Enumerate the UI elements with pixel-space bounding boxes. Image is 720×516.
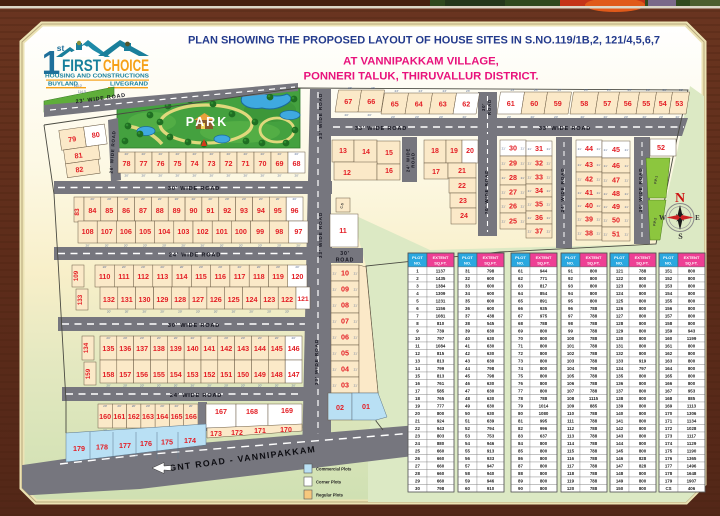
svg-text:170: 170 — [665, 411, 673, 416]
svg-text:20': 20' — [124, 152, 128, 156]
svg-text:20': 20' — [201, 243, 205, 247]
svg-text:20': 20' — [276, 265, 280, 269]
svg-text:21': 21' — [597, 147, 601, 151]
svg-text:20': 20' — [642, 115, 646, 119]
svg-text:800: 800 — [540, 456, 548, 461]
svg-text:20': 20' — [258, 243, 262, 247]
svg-text:20': 20' — [90, 197, 94, 201]
svg-text:21': 21' — [604, 233, 608, 237]
svg-text:20': 20' — [603, 115, 607, 119]
svg-text:794: 794 — [487, 426, 495, 431]
svg-text:SQ.FT.: SQ.FT. — [587, 260, 599, 265]
svg-text:70: 70 — [518, 336, 523, 341]
svg-text:20': 20' — [239, 243, 243, 247]
svg-text:600: 600 — [487, 291, 495, 296]
svg-text:21': 21' — [354, 336, 358, 340]
svg-text:885: 885 — [590, 404, 598, 409]
svg-text:800: 800 — [540, 336, 548, 341]
svg-text:20': 20' — [624, 115, 628, 119]
svg-text:127: 127 — [192, 295, 204, 304]
svg-text:20': 20' — [226, 173, 230, 177]
svg-text:74: 74 — [191, 159, 199, 168]
svg-text:18: 18 — [415, 396, 420, 401]
svg-text:46: 46 — [612, 161, 620, 170]
svg-text:21': 21' — [604, 164, 608, 168]
svg-text:1134: 1134 — [687, 419, 697, 424]
svg-text:101: 101 — [216, 227, 228, 236]
svg-text:99: 99 — [256, 227, 264, 236]
svg-text:800: 800 — [639, 396, 647, 401]
svg-text:406: 406 — [688, 486, 696, 491]
svg-text:800: 800 — [639, 336, 647, 341]
svg-text:68: 68 — [518, 321, 523, 326]
svg-text:11: 11 — [339, 226, 347, 235]
svg-text:20': 20' — [391, 115, 395, 119]
svg-text:60: 60 — [530, 99, 538, 108]
svg-text:141: 141 — [616, 419, 624, 424]
svg-text:48: 48 — [465, 396, 470, 401]
svg-text:ROAD: ROAD — [411, 152, 416, 168]
svg-text:810: 810 — [437, 321, 445, 326]
svg-text:20': 20' — [178, 309, 182, 313]
svg-text:21': 21' — [333, 336, 337, 340]
svg-text:30' WIDE ROAD: 30' WIDE ROAD — [168, 186, 220, 192]
svg-text:108: 108 — [567, 396, 575, 401]
svg-text:639: 639 — [487, 419, 495, 424]
svg-text:630: 630 — [487, 411, 495, 416]
svg-text:20': 20' — [141, 152, 145, 156]
svg-text:ROAD: ROAD — [487, 99, 492, 115]
svg-text:23': 23' — [607, 88, 611, 92]
svg-text:20': 20' — [344, 113, 348, 117]
svg-text:LIVEGRAND: LIVEGRAND — [110, 82, 148, 88]
svg-text:20': 20' — [295, 265, 299, 269]
svg-text:50: 50 — [612, 216, 620, 225]
svg-text:136: 136 — [616, 381, 624, 386]
svg-text:1084: 1084 — [436, 344, 446, 349]
svg-text:23: 23 — [459, 198, 467, 205]
svg-text:43: 43 — [585, 160, 593, 169]
svg-text:84: 84 — [88, 206, 96, 215]
svg-text:946: 946 — [487, 479, 495, 484]
svg-text:105: 105 — [567, 374, 575, 379]
svg-text:20': 20' — [285, 309, 289, 313]
svg-text:777: 777 — [437, 404, 445, 409]
svg-text:179: 179 — [665, 479, 673, 484]
svg-text:CHOICE: CHOICE — [103, 56, 149, 75]
svg-text:21': 21' — [354, 368, 358, 372]
svg-text:800: 800 — [639, 479, 647, 484]
svg-text:104: 104 — [158, 227, 170, 236]
svg-text:105: 105 — [139, 227, 151, 236]
svg-text:147: 147 — [616, 464, 624, 469]
svg-text:21: 21 — [458, 168, 466, 175]
svg-text:21': 21' — [625, 233, 629, 237]
svg-text:800: 800 — [688, 291, 696, 296]
svg-text:145: 145 — [616, 449, 624, 454]
svg-text:20': 20' — [241, 383, 245, 387]
svg-text:788: 788 — [590, 411, 598, 416]
svg-text:119: 119 — [567, 479, 575, 484]
svg-text:160: 160 — [99, 412, 111, 421]
svg-text:22: 22 — [458, 183, 466, 190]
svg-text:17: 17 — [432, 169, 440, 176]
svg-text:09: 09 — [341, 285, 349, 294]
svg-text:1231: 1231 — [436, 299, 446, 304]
svg-text:800: 800 — [540, 366, 548, 371]
svg-text:800: 800 — [639, 381, 647, 386]
svg-text:21': 21' — [625, 219, 629, 223]
svg-text:36: 36 — [465, 306, 470, 311]
svg-text:21': 21' — [604, 148, 608, 152]
svg-text:155: 155 — [153, 370, 165, 379]
svg-text:21': 21' — [333, 352, 337, 356]
svg-text:173: 173 — [210, 431, 222, 438]
svg-text:800: 800 — [639, 374, 647, 379]
svg-text:120: 120 — [291, 272, 303, 281]
svg-text:21': 21' — [521, 220, 525, 224]
svg-text:20': 20' — [162, 243, 166, 247]
svg-text:st: st — [57, 43, 65, 53]
svg-text:20': 20' — [277, 173, 281, 177]
svg-text:20': 20' — [292, 383, 296, 387]
svg-text:76: 76 — [518, 381, 523, 386]
svg-text:21': 21' — [578, 191, 582, 195]
svg-text:42: 42 — [465, 351, 470, 356]
svg-text:797: 797 — [437, 336, 445, 341]
svg-text:21': 21' — [604, 219, 608, 223]
svg-text:21': 21' — [502, 176, 506, 180]
svg-text:20': 20' — [238, 265, 242, 269]
svg-text:135: 135 — [616, 374, 624, 379]
svg-text:21': 21' — [597, 191, 601, 195]
svg-text:159: 159 — [85, 368, 92, 379]
svg-text:788: 788 — [590, 419, 598, 424]
svg-text:54: 54 — [465, 441, 470, 446]
svg-text:95: 95 — [568, 299, 573, 304]
svg-text:600: 600 — [487, 284, 495, 289]
svg-text:1306: 1306 — [687, 411, 697, 416]
svg-text:N: N — [675, 191, 685, 206]
svg-text:140: 140 — [616, 411, 624, 416]
svg-text:21': 21' — [578, 218, 582, 222]
svg-text:148: 148 — [616, 471, 624, 476]
svg-text:21': 21' — [578, 232, 582, 236]
svg-text:121: 121 — [616, 269, 624, 274]
svg-text:112: 112 — [137, 272, 149, 281]
svg-text:20': 20' — [277, 243, 281, 247]
svg-text:50: 50 — [465, 411, 470, 416]
svg-text:21': 21' — [333, 288, 337, 292]
svg-text:21': 21' — [521, 176, 525, 180]
svg-text:600: 600 — [487, 276, 495, 281]
svg-text:600: 600 — [487, 299, 495, 304]
svg-text:630: 630 — [487, 336, 495, 341]
svg-text:20': 20' — [143, 309, 147, 313]
svg-text:800: 800 — [639, 426, 647, 431]
svg-text:26: 26 — [509, 202, 517, 211]
svg-text:29: 29 — [415, 479, 420, 484]
svg-text:630: 630 — [487, 329, 495, 334]
svg-text:111: 111 — [118, 272, 129, 281]
svg-text:100: 100 — [235, 227, 247, 236]
svg-text:800: 800 — [540, 449, 548, 454]
svg-text:142: 142 — [616, 426, 624, 431]
svg-text:23': 23' — [627, 88, 631, 92]
svg-text:93: 93 — [568, 284, 573, 289]
svg-text:947: 947 — [487, 464, 495, 469]
svg-text:788: 788 — [590, 351, 598, 356]
svg-text:788: 788 — [590, 381, 598, 386]
svg-text:20': 20' — [191, 197, 195, 201]
svg-text:36: 36 — [535, 213, 543, 222]
svg-text:800: 800 — [639, 351, 647, 356]
svg-text:132: 132 — [103, 295, 115, 304]
svg-text:21': 21' — [528, 176, 532, 180]
svg-text:20': 20' — [209, 173, 213, 177]
svg-text:01: 01 — [362, 402, 370, 411]
svg-text:30' WIDE ROAD: 30' WIDE ROAD — [168, 323, 220, 329]
svg-text:48: 48 — [612, 189, 620, 198]
svg-text:143: 143 — [237, 344, 249, 353]
svg-text:171: 171 — [665, 419, 673, 424]
svg-text:157: 157 — [665, 314, 673, 319]
svg-text:77: 77 — [518, 389, 523, 394]
svg-text:53: 53 — [675, 99, 683, 108]
svg-text:72: 72 — [518, 351, 523, 356]
svg-text:151: 151 — [665, 269, 673, 274]
svg-text:79: 79 — [518, 404, 523, 409]
svg-text:28: 28 — [509, 173, 517, 182]
svg-text:122: 122 — [281, 295, 293, 304]
svg-text:800: 800 — [540, 381, 548, 386]
svg-text:20': 20' — [103, 404, 107, 408]
svg-text:943: 943 — [688, 329, 696, 334]
svg-text:788: 788 — [590, 306, 598, 311]
svg-text:10: 10 — [415, 336, 420, 341]
svg-text:20': 20' — [181, 243, 185, 247]
svg-text:AT VANNIPAKKAM VILLAGE,: AT VANNIPAKKAM VILLAGE, — [343, 56, 499, 68]
svg-text:33: 33 — [535, 173, 543, 182]
svg-text:944: 944 — [540, 269, 548, 274]
svg-text:161: 161 — [113, 412, 125, 421]
svg-text:21': 21' — [578, 147, 582, 151]
svg-text:88: 88 — [518, 471, 523, 476]
svg-text:16: 16 — [385, 168, 393, 175]
svg-text:800: 800 — [437, 411, 445, 416]
svg-text:61: 61 — [518, 269, 523, 274]
svg-text:545: 545 — [487, 321, 495, 326]
svg-text:1137: 1137 — [436, 269, 446, 274]
svg-text:65: 65 — [391, 100, 399, 109]
svg-text:172: 172 — [665, 426, 673, 431]
svg-text:177: 177 — [665, 464, 673, 469]
svg-text:21': 21' — [521, 147, 525, 151]
svg-text:813: 813 — [437, 374, 445, 379]
svg-text:20': 20' — [123, 336, 127, 340]
svg-text:1080: 1080 — [539, 411, 549, 416]
svg-text:21': 21' — [528, 203, 532, 207]
svg-text:35: 35 — [465, 299, 470, 304]
svg-text:21': 21' — [354, 272, 358, 276]
svg-text:77: 77 — [140, 159, 148, 168]
svg-text:20': 20' — [107, 309, 111, 313]
svg-text:74: 74 — [518, 366, 523, 371]
svg-text:126: 126 — [616, 306, 624, 311]
svg-text:25: 25 — [509, 217, 517, 226]
svg-text:113: 113 — [157, 272, 169, 281]
svg-text:630: 630 — [487, 389, 495, 394]
svg-text:739: 739 — [437, 329, 445, 334]
svg-text:20': 20' — [207, 336, 211, 340]
svg-text:SQ.FT.: SQ.FT. — [537, 260, 549, 265]
svg-text:168: 168 — [246, 407, 258, 416]
svg-text:SQ.FT.: SQ.FT. — [484, 260, 496, 265]
svg-text:20: 20 — [466, 148, 474, 155]
svg-text:110.0': 110.0' — [74, 84, 83, 88]
svg-text:126: 126 — [210, 295, 222, 304]
svg-text:20': 20' — [175, 404, 179, 408]
svg-text:109: 109 — [567, 404, 575, 409]
svg-text:134: 134 — [616, 366, 624, 371]
svg-text:10: 10 — [341, 269, 349, 278]
svg-text:24: 24 — [415, 441, 420, 446]
svg-text:162: 162 — [128, 412, 140, 421]
svg-text:800: 800 — [590, 269, 598, 274]
svg-text:53: 53 — [465, 434, 470, 439]
svg-text:23: 23 — [415, 434, 420, 439]
svg-text:21': 21' — [354, 304, 358, 308]
svg-text:87: 87 — [139, 206, 147, 215]
svg-text:42: 42 — [585, 175, 593, 184]
svg-text:103: 103 — [567, 359, 575, 364]
svg-text:66: 66 — [518, 306, 523, 311]
svg-text:788: 788 — [590, 374, 598, 379]
svg-text:115: 115 — [567, 449, 575, 454]
svg-text:158: 158 — [665, 321, 673, 326]
svg-text:21: 21 — [415, 419, 420, 424]
svg-text:144: 144 — [254, 344, 266, 353]
svg-text:800: 800 — [639, 449, 647, 454]
svg-text:23': 23' — [348, 86, 352, 90]
svg-text:975: 975 — [540, 314, 548, 319]
svg-text:80: 80 — [91, 130, 100, 140]
svg-text:21': 21' — [354, 352, 358, 356]
svg-text:32: 32 — [465, 276, 470, 281]
svg-text:660: 660 — [437, 464, 445, 469]
svg-text:20': 20' — [124, 173, 128, 177]
svg-text:1190: 1190 — [687, 449, 697, 454]
svg-text:166: 166 — [185, 412, 197, 421]
svg-text:39: 39 — [585, 215, 593, 224]
svg-text:117: 117 — [567, 464, 575, 469]
svg-text:660: 660 — [437, 456, 445, 461]
svg-text:20': 20' — [224, 336, 228, 340]
svg-text:21': 21' — [547, 162, 551, 166]
svg-text:21': 21' — [502, 205, 506, 209]
svg-text:139: 139 — [616, 404, 624, 409]
svg-text:788: 788 — [540, 396, 548, 401]
svg-text:788: 788 — [590, 441, 598, 446]
svg-text:946: 946 — [487, 441, 495, 446]
svg-text:788: 788 — [590, 449, 598, 454]
svg-text:128: 128 — [174, 295, 186, 304]
svg-text:172: 172 — [231, 430, 243, 437]
svg-text:153: 153 — [665, 284, 673, 289]
svg-text:788: 788 — [590, 389, 598, 394]
svg-text:1014: 1014 — [539, 404, 549, 409]
svg-text:119: 119 — [272, 272, 284, 281]
svg-text:16: 16 — [415, 381, 420, 386]
svg-text:637: 637 — [540, 434, 548, 439]
svg-text:175: 175 — [161, 438, 173, 447]
svg-text:788: 788 — [540, 321, 548, 326]
svg-text:800: 800 — [540, 351, 548, 356]
svg-text:1156: 1156 — [436, 306, 446, 311]
svg-text:21': 21' — [604, 205, 608, 209]
svg-text:128: 128 — [616, 321, 624, 326]
svg-text:156: 156 — [665, 306, 673, 311]
svg-text:54: 54 — [659, 99, 667, 108]
svg-text:106: 106 — [120, 227, 132, 236]
svg-text:123: 123 — [616, 284, 624, 289]
svg-text:20': 20' — [209, 152, 213, 156]
svg-text:21': 21' — [333, 272, 337, 276]
svg-text:23': 23' — [584, 88, 588, 92]
svg-text:31: 31 — [535, 144, 543, 153]
svg-text:90: 90 — [518, 486, 523, 491]
svg-text:HOUSING AND CONSTRUCTIONS: HOUSING AND CONSTRUCTIONS — [45, 74, 150, 80]
svg-text:59: 59 — [554, 99, 562, 108]
svg-text:630: 630 — [487, 359, 495, 364]
svg-text:12: 12 — [343, 170, 351, 177]
svg-text:08: 08 — [341, 301, 349, 310]
svg-text:W: W — [659, 214, 666, 222]
svg-text:33' WIDE ROAD: 33' WIDE ROAD — [314, 339, 320, 385]
svg-text:40: 40 — [465, 336, 470, 341]
svg-text:19: 19 — [450, 148, 458, 155]
svg-text:21': 21' — [333, 368, 337, 372]
svg-text:788: 788 — [590, 486, 598, 491]
svg-text:78: 78 — [123, 159, 131, 168]
svg-text:32: 32 — [535, 159, 543, 168]
svg-text:800: 800 — [540, 344, 548, 349]
svg-text:132: 132 — [616, 351, 624, 356]
svg-text:20': 20' — [158, 197, 162, 201]
svg-text:171: 171 — [254, 428, 266, 435]
svg-text:118: 118 — [253, 272, 265, 281]
svg-text:910: 910 — [487, 486, 495, 491]
svg-text:92: 92 — [568, 276, 573, 281]
svg-text:75: 75 — [518, 374, 523, 379]
svg-text:PLAN SHOWING THE PROPOSED LAYO: PLAN SHOWING THE PROPOSED LAYOUT OF HOUS… — [188, 35, 660, 47]
svg-text:20': 20' — [174, 336, 178, 340]
svg-text:854: 854 — [540, 291, 548, 296]
svg-text:21': 21' — [547, 230, 551, 234]
svg-text:20': 20' — [675, 115, 679, 119]
svg-text:800: 800 — [540, 464, 548, 469]
svg-text:81: 81 — [74, 150, 83, 160]
svg-text:174: 174 — [665, 441, 673, 446]
svg-text:20': 20' — [141, 173, 145, 177]
svg-text:176: 176 — [665, 456, 673, 461]
svg-text:49: 49 — [465, 404, 470, 409]
svg-text:165: 165 — [665, 374, 673, 379]
svg-text:27: 27 — [509, 188, 517, 197]
svg-text:21': 21' — [547, 176, 551, 180]
svg-text:176: 176 — [140, 439, 152, 448]
svg-text:20': 20' — [106, 336, 110, 340]
